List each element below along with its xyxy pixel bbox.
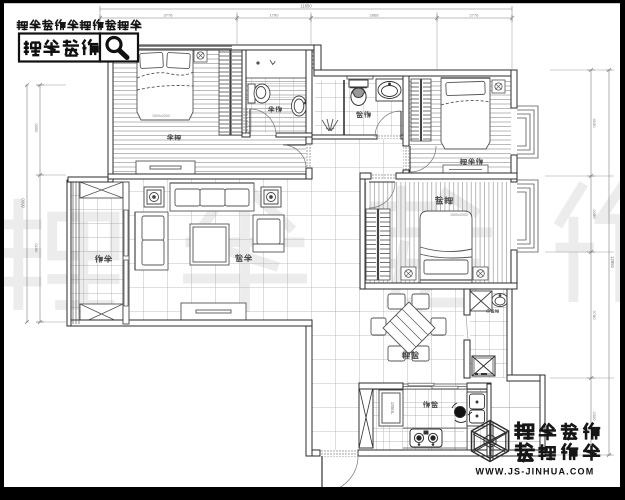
svg-text:4870: 4870: [34, 243, 39, 253]
svg-text:8000: 8000: [21, 198, 26, 208]
svg-text:3000: 3000: [34, 123, 39, 133]
svg-text:1850L: 1850L: [390, 402, 395, 415]
svg-text:2380: 2380: [592, 210, 597, 220]
svg-text:2868: 2868: [370, 13, 380, 18]
svg-text:1500x2000: 1500x2000: [450, 213, 468, 217]
svg-text:WWW.JS-JINHUA.COM: WWW.JS-JINHUA.COM: [476, 467, 595, 477]
svg-text:3776: 3776: [164, 13, 174, 18]
svg-text:4150: 4150: [592, 119, 597, 129]
svg-text:2776: 2776: [470, 13, 480, 18]
svg-text:1790: 1790: [270, 13, 280, 18]
svg-text:2300: 2300: [592, 412, 597, 422]
svg-text:1500x2000: 1500x2000: [152, 114, 170, 118]
svg-text:11850: 11850: [300, 4, 312, 9]
svg-text:3760: 3760: [592, 311, 597, 321]
svg-text:12850: 12850: [610, 256, 615, 268]
